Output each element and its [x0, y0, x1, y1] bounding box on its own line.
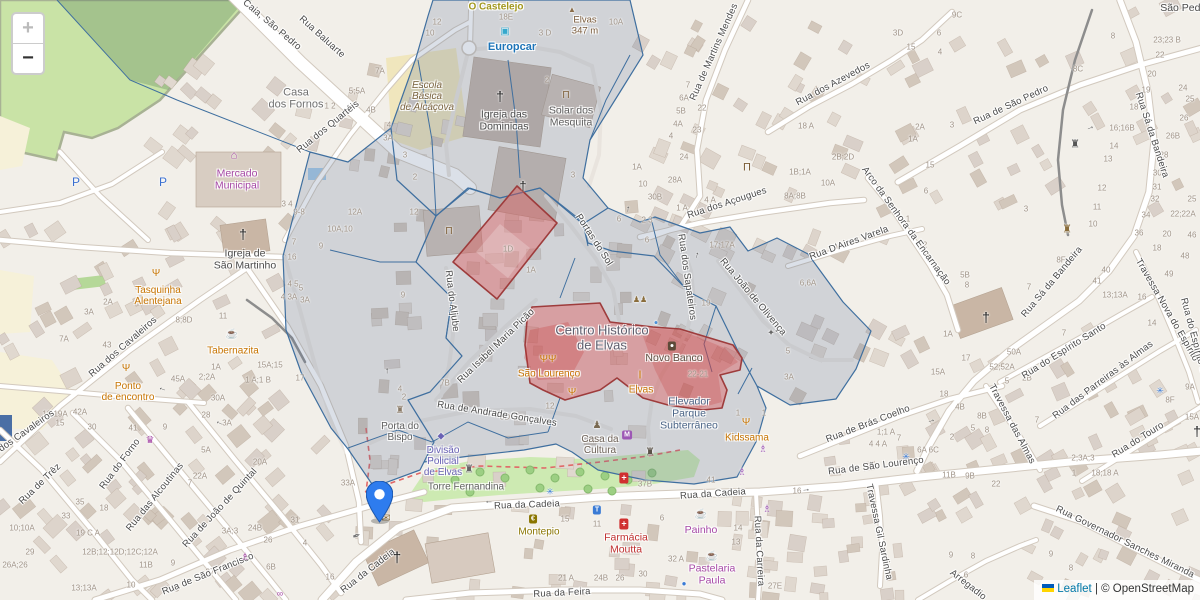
house-number: 8: [1069, 564, 1073, 573]
house-number: 8: [1111, 32, 1115, 41]
house-number: 9: [171, 559, 175, 568]
house-number: 15A;15: [257, 361, 282, 370]
playground-icon: ♟♟: [633, 296, 647, 304]
place-label: Novo Banco: [645, 353, 702, 365]
street-label: Travessa das Almas: [986, 382, 1037, 466]
house-number: 41: [707, 476, 716, 485]
house-number: 16: [793, 487, 802, 496]
restaurant-icon: Ψ: [122, 364, 130, 374]
restaurant-icon: Ψ: [152, 269, 160, 279]
gate-icon: ♜: [396, 406, 405, 416]
leaflet-link[interactable]: Leaflet: [1057, 583, 1092, 595]
street-label: Rua do Forno: [97, 437, 142, 492]
house-number: 18 A: [798, 122, 814, 131]
telecom-icon: ✦: [767, 329, 775, 338]
house-number: 20A: [253, 458, 267, 467]
place-label: Torre Fernandina: [428, 481, 504, 492]
house-number: 18: [100, 504, 109, 513]
oneway-arrow: →: [622, 204, 632, 214]
house-number: 49: [1165, 270, 1174, 279]
house-number: 22: [992, 480, 1001, 489]
parking-icon: P: [159, 176, 167, 188]
map-labels-layer: 18E12103 D10A7A5;5A4B1 243A276A5B4A42223…: [0, 0, 1200, 600]
place-label: Painho: [685, 525, 718, 537]
house-number: 1A: [943, 330, 953, 339]
gate-icon: ♜: [1062, 225, 1072, 236]
place-label: Elvas347 m: [572, 15, 598, 36]
house-number: 3A: [383, 134, 393, 143]
house-number: 10A: [609, 18, 623, 27]
house-number: 13: [732, 538, 741, 547]
house-number: 9-8: [293, 208, 305, 217]
house-number: 5B: [676, 107, 686, 116]
house-number: 4A: [673, 120, 683, 129]
house-number: 3: [571, 171, 575, 180]
house-number: 7: [292, 238, 296, 247]
house-number: 4: [938, 48, 942, 57]
house-number: 1A: [211, 363, 221, 372]
house-number: 28A: [668, 176, 682, 185]
place-label: Igreja deSão Martinho: [214, 248, 276, 272]
clothes-icon: ♗: [241, 553, 250, 563]
street-label: Rua da Cadeia: [680, 486, 747, 502]
house-number: 9: [949, 551, 953, 560]
house-number: 26: [616, 574, 625, 583]
bus-icon: ●: [682, 580, 687, 588]
street-label: Rua dos Sapateiros: [675, 233, 698, 321]
house-number: 50A: [1007, 348, 1021, 357]
place-label: Europcar: [488, 41, 536, 53]
market-icon: ⌂: [231, 151, 238, 162]
house-number: 45A: [171, 375, 185, 384]
house-number: 4 5: [287, 280, 298, 289]
taxi-icon: T: [593, 506, 601, 515]
place-label: São Lourenço: [518, 368, 580, 379]
church-cross-icon: †: [982, 310, 990, 324]
house-number: 5A: [201, 446, 211, 455]
people-icon: ♟: [593, 421, 602, 431]
place-label: Elvas: [629, 384, 653, 395]
house-number: 4B: [366, 106, 376, 115]
house-number: 12: [1098, 184, 1107, 193]
house-number: 9: [1049, 550, 1053, 559]
house-number: 22: [698, 104, 707, 113]
pharmacy-icon: +: [619, 519, 628, 530]
church-cross-icon: †: [496, 89, 504, 103]
place-label: Centro Históricode Elvas: [555, 323, 648, 352]
house-number: 18;18 A: [1091, 469, 1118, 478]
house-number: 16: [326, 573, 335, 582]
museum-icon: Π: [743, 163, 751, 174]
rings-icon: ∞: [277, 590, 283, 599]
place-label: PastelariaPaula: [689, 563, 736, 587]
house-number: 6,6A: [800, 279, 816, 288]
house-number: 2B;2D: [832, 153, 854, 162]
street-label: Portas do Sol: [573, 212, 615, 268]
street-label: Rua dos Cavaleiros: [0, 408, 57, 467]
house-number: 28: [202, 411, 211, 420]
street-label: Rua do Aljube: [443, 270, 461, 333]
house-number: 10: [1089, 220, 1098, 229]
place-label: FarmáciaMoutta: [604, 532, 648, 556]
house-number: 23;23 B: [1153, 36, 1181, 45]
house-number: 22: [1156, 51, 1165, 60]
house-number: 4: [669, 132, 673, 141]
house-number: 6: [660, 514, 664, 523]
place-label: Tabernazita: [207, 345, 259, 356]
house-number: 8;8D: [176, 316, 193, 325]
house-number: 20: [1163, 230, 1172, 239]
house-number: 19: [702, 299, 711, 308]
house-number: 1: [762, 409, 766, 418]
museum-box-icon: M: [622, 431, 632, 440]
house-number: 16;16B: [1109, 124, 1134, 133]
manor-icon: Π: [562, 91, 569, 101]
parking-icon: P: [72, 176, 80, 188]
house-number: 2: [413, 173, 417, 182]
place-label: TasquinhaAlentejana: [134, 285, 181, 307]
quill-icon: ✒: [351, 531, 362, 543]
house-number: 8B: [977, 412, 987, 421]
monument-icon: Ⅰ: [638, 371, 641, 382]
house-number: 2;3A;3: [1071, 454, 1094, 463]
oneway-arrow: →: [382, 367, 391, 376]
house-number: 46: [1188, 231, 1197, 240]
house-number: 10: [639, 180, 648, 189]
restaurant-icon: Ψ: [568, 388, 576, 398]
house-number: 2: [950, 433, 954, 442]
house-number: 35: [76, 498, 85, 507]
house-number: 15A: [931, 368, 945, 377]
clothes-icon: ♗: [759, 445, 768, 455]
house-number: 30: [88, 423, 97, 432]
house-number: 41: [1093, 277, 1102, 286]
house-number: 12: [410, 208, 419, 217]
house-number: 27E: [768, 582, 782, 591]
house-number: 6: [937, 29, 941, 38]
house-number: 4 4 A: [869, 440, 887, 449]
house-number: 30A: [211, 394, 225, 403]
house-number: 2;2A: [199, 373, 215, 382]
house-number: 1;1 A: [877, 428, 895, 437]
street-label: Rua de Trêz: [17, 461, 63, 506]
house-number: 24B: [594, 574, 608, 583]
house-number: 25: [1186, 95, 1195, 104]
crown-icon: ♛: [146, 436, 155, 446]
house-number: 34: [1142, 211, 1151, 220]
house-number: 8C: [1073, 65, 1083, 74]
house-number: 9B: [965, 472, 975, 481]
house-number: 9A: [1185, 383, 1195, 392]
street-label: Rua dos Açougues: [686, 185, 768, 221]
house-number: 13;13A: [1102, 291, 1127, 300]
house-number: 8: [965, 281, 969, 290]
house-number: 22;22A: [1170, 210, 1195, 219]
house-number: 3A: [784, 373, 794, 382]
house-number: 26: [1180, 114, 1189, 123]
house-number: 25: [1188, 195, 1197, 204]
street-label: Rua da Cadeia: [494, 498, 560, 511]
house-number: 5: [786, 347, 790, 356]
house-number: 23: [693, 126, 702, 135]
street-label: Rua da Feira: [533, 586, 591, 600]
house-number: 11: [593, 520, 601, 529]
place-label: Montepio: [518, 526, 559, 537]
house-number: 7: [188, 479, 192, 488]
house-number: 14: [734, 524, 743, 533]
house-number: 4: [387, 121, 391, 130]
atm-icon: €: [529, 515, 537, 524]
house-number: 3: [1024, 205, 1028, 214]
house-number: 3 D: [539, 29, 551, 38]
oneway-arrow: →: [801, 484, 811, 494]
church-cross-icon: †: [239, 227, 247, 241]
house-number: 10;10A: [9, 524, 34, 533]
car-rental-icon: ▣: [500, 27, 509, 37]
house-number: 2: [402, 393, 406, 402]
place-label: Igreja dasDominicas: [479, 109, 528, 133]
house-number: 7B: [440, 379, 450, 388]
house-number: 1 A;1 B: [245, 376, 271, 385]
tower-icon: ♜: [1070, 140, 1080, 151]
house-number: 3A;3: [222, 527, 238, 536]
house-number: 12B;12;12D;12C;12A: [82, 548, 158, 557]
house-number: 26B: [1166, 132, 1180, 141]
house-number: 15: [926, 161, 935, 170]
house-number: 52;52A: [989, 363, 1014, 372]
house-number: 13: [1104, 155, 1113, 164]
house-number: 3: [950, 121, 954, 130]
place-label: Casados Fornos: [268, 87, 323, 112]
house-number: 9: [319, 242, 323, 251]
house-number: 10: [426, 29, 435, 38]
house-number: 9C: [952, 11, 962, 20]
house-number: 15: [907, 43, 916, 52]
house-number: 21 A: [558, 574, 574, 583]
house-number: 4B: [955, 403, 965, 412]
leaflet-map-canvas[interactable]: 18E12103 D10A7A5;5A4B1 243A276A5B4A42223…: [0, 0, 1200, 600]
recycling-icon: ●: [654, 320, 658, 327]
house-number: 5: [971, 424, 975, 433]
fountain-icon: ✳: [546, 488, 554, 497]
bank-icon: ●: [668, 342, 676, 351]
house-number: 2: [545, 76, 549, 85]
house-number: 7: [1035, 416, 1039, 425]
place-label: ElevadorParqueSubterrâneo: [660, 396, 718, 431]
ukraine-flag-icon: [1042, 584, 1054, 592]
house-number: 4 3A: [281, 293, 297, 302]
house-number: 31: [291, 516, 300, 525]
map-marker-pin[interactable]: [366, 481, 393, 524]
street-label: Rua do Touro: [1110, 420, 1166, 461]
house-number: 26A;26: [2, 561, 27, 570]
house-number: 7: [897, 434, 901, 443]
house-number: 7: [686, 81, 690, 90]
house-number: 6: [617, 215, 621, 224]
house-number: 8: [971, 552, 975, 561]
street-label: Arco da Senhora da Encarnação: [859, 165, 952, 288]
house-number: 1D: [503, 245, 513, 254]
house-number: 16: [1138, 293, 1147, 302]
house-number: 24: [1179, 84, 1188, 93]
house-number: 18: [1153, 244, 1162, 253]
gate-icon: ♜: [645, 448, 655, 459]
street-label: Rua de Martins Mendes: [688, 2, 741, 102]
house-number: 30: [639, 570, 648, 579]
fountain-icon: ✳: [1156, 387, 1164, 396]
oneway-arrow: →: [485, 499, 494, 508]
oneway-arrow: →: [1084, 121, 1096, 133]
house-number: 22-21: [688, 370, 708, 379]
osm-attribution-link[interactable]: © OpenStreetMap: [1101, 583, 1194, 595]
house-number: 37B: [638, 480, 652, 489]
house-number: 7: [1027, 283, 1031, 292]
house-number: 48: [1181, 252, 1190, 261]
house-number: 42A: [73, 408, 87, 417]
place-label: DivisãoPolicialde Elvas: [424, 445, 462, 479]
zoom-control: + −: [11, 12, 45, 75]
house-number: 16: [288, 253, 297, 262]
house-number: 11B: [139, 561, 153, 570]
house-number: 7A: [375, 67, 385, 76]
house-number: 26: [264, 536, 273, 545]
house-number: 1A: [526, 266, 536, 275]
place-label: MercadoMunicipal: [215, 168, 259, 192]
oneway-arrow: →: [925, 414, 937, 426]
place-label: O Castelejo: [468, 1, 523, 12]
place-label: Kidssama: [725, 432, 769, 443]
house-number: 9: [163, 423, 167, 432]
street-label: Rua D'Aires Varela: [808, 224, 890, 263]
place-label: EscolaBásicade Alcáçova: [400, 80, 454, 114]
house-number: 7: [1062, 329, 1066, 338]
church-cross-icon: †: [519, 180, 526, 193]
house-number: 14: [1148, 319, 1157, 328]
house-number: 2A: [915, 123, 925, 132]
house-number: 2A: [103, 298, 113, 307]
peak-icon: ▲: [568, 6, 576, 14]
house-number: 6B: [266, 563, 276, 572]
dress-icon: ♗: [738, 468, 747, 478]
house-number: 33A: [341, 479, 355, 488]
place-label: São Pedro: [1160, 3, 1200, 15]
street-label: Rua das Alcoutinas: [124, 461, 186, 534]
street-label: Rua de Andrade Gonçalves: [436, 399, 557, 429]
house-number: 6: [924, 187, 928, 196]
street-label: Rua de São Pedro: [972, 83, 1050, 127]
house-number: 32: [1151, 195, 1160, 204]
house-number: 5B: [960, 271, 970, 280]
house-number: 41: [129, 424, 138, 433]
place-label: Casa daCultura: [581, 434, 618, 456]
street-label: Rua da Carreira: [752, 515, 767, 586]
street-label: Rua dos Azevedos: [794, 60, 872, 108]
house-number: 1 2: [324, 102, 335, 111]
house-number: 24B: [248, 524, 262, 533]
oneway-arrow: →: [690, 249, 701, 260]
house-number: 1B;1A: [789, 168, 811, 177]
police-icon: ◆: [438, 432, 445, 441]
house-number: 10: [127, 581, 136, 590]
house-number: 14: [1110, 142, 1119, 151]
house-number: 17: [962, 354, 971, 363]
house-number: 31: [1153, 183, 1162, 192]
place-label: Solar dosMesquita: [549, 105, 593, 129]
house-number: 36: [1135, 229, 1144, 238]
house-number: 32 A: [668, 555, 684, 564]
street-label: Travessa Gil Sardinha: [863, 483, 894, 581]
house-number: 10A: [821, 179, 835, 188]
oneway-arrow: →: [156, 384, 168, 396]
house-number: 17;17A: [709, 241, 734, 250]
attribution-bar: Leaflet | © OpenStreetMap: [1034, 580, 1200, 600]
pharmacy-icon: +: [619, 473, 628, 484]
house-number: 3: [403, 151, 407, 160]
cake-icon: ☕: [706, 552, 718, 562]
house-number: 6: [645, 236, 649, 245]
house-number: 8A;8B: [784, 192, 806, 201]
house-number: 3 4: [281, 200, 292, 209]
house-number: 1A: [632, 163, 642, 172]
street-label: Rua Governador Sanches Miranda: [1054, 504, 1196, 581]
house-number: 19 C A: [76, 529, 100, 538]
palace-icon: Π: [445, 227, 452, 237]
house-number: 12A: [348, 208, 362, 217]
house-number: 15A: [1185, 413, 1199, 422]
zoom-in-button[interactable]: +: [13, 14, 43, 44]
cup-icon: ☕: [695, 510, 707, 520]
house-number: 43: [103, 341, 112, 350]
street-label: Rua Baluarte: [297, 14, 347, 61]
house-number: 3A: [84, 308, 94, 317]
house-number: 11B: [942, 471, 956, 480]
zoom-out-button[interactable]: −: [13, 44, 43, 73]
place-label: Porta doBispo: [381, 421, 419, 443]
attribution-separator: |: [1092, 583, 1101, 595]
house-number: 8F: [1165, 396, 1174, 405]
house-number: 13;13A: [71, 584, 96, 593]
house-number: 22A: [193, 472, 207, 481]
house-number: 6A 6C: [917, 446, 939, 455]
bag-icon: ♗: [763, 505, 772, 515]
house-number: 1: [1072, 469, 1076, 478]
street-label: Rua da Cadeia: [339, 546, 398, 595]
house-number: 10A,10: [327, 225, 352, 234]
house-number: 24: [680, 153, 689, 162]
house-number: 1A: [908, 135, 918, 144]
house-number: 30B: [648, 193, 662, 202]
church-cross-icon: †: [1193, 424, 1200, 438]
church-cross-icon: †: [393, 551, 401, 566]
house-number: 17: [296, 374, 305, 383]
house-number: 1: [736, 409, 740, 418]
house-number: 33: [62, 512, 71, 521]
restaurant-icon: ΨΨ: [540, 355, 557, 365]
house-number: 5: [299, 284, 303, 293]
house-number: 4: [303, 539, 307, 548]
house-number: 18E: [499, 13, 513, 22]
house-number: 18: [940, 390, 949, 399]
house-number: 9: [401, 291, 405, 300]
house-number: 15: [56, 419, 65, 428]
house-number: 29: [26, 548, 35, 557]
house-number: 3A: [300, 296, 310, 305]
house-number: 11: [1093, 203, 1101, 212]
house-number: 8: [985, 426, 989, 435]
house-number: 3D: [893, 29, 903, 38]
house-number: 40: [1102, 266, 1111, 275]
house-number: 12: [433, 18, 442, 27]
